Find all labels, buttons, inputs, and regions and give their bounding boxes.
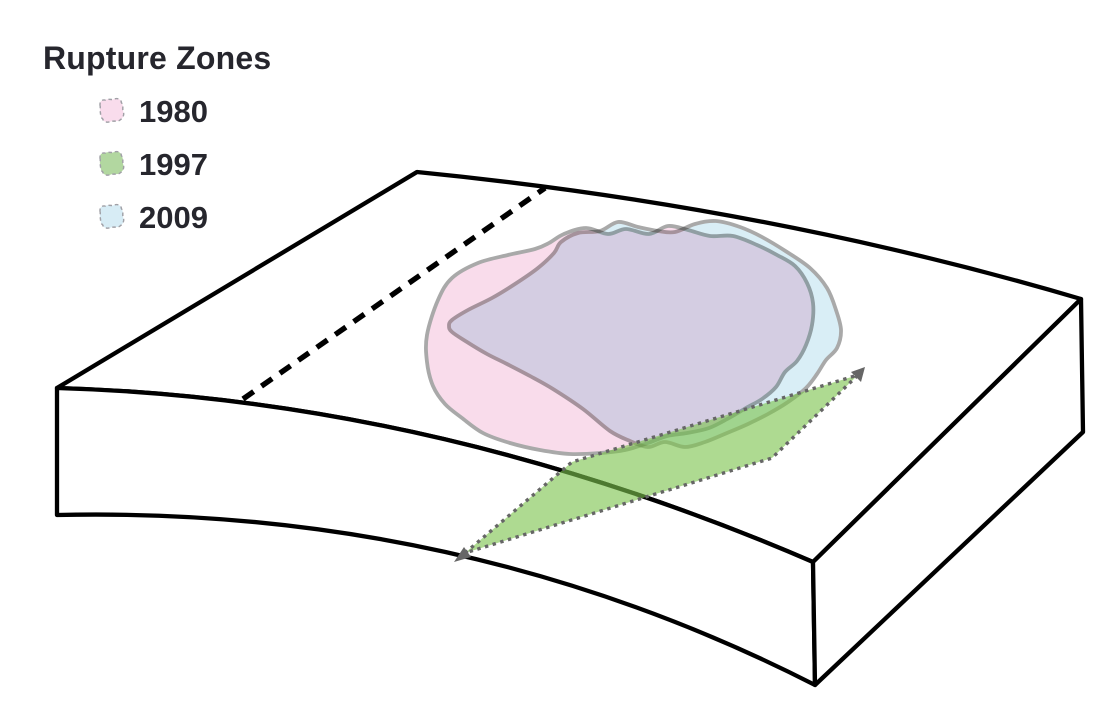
legend-item-1980: 1980 — [95, 94, 271, 130]
legend-item-2009: 2009 — [95, 200, 271, 236]
zone-2009-swatch-icon — [95, 201, 129, 235]
legend-label-1980: 1980 — [139, 94, 208, 130]
legend-label-1997: 1997 — [139, 147, 208, 183]
zone-1997-swatch-icon — [95, 148, 129, 182]
legend-label-2009: 2009 — [139, 200, 208, 236]
figure: Rupture Zones 1980 1997 2009 — [0, 0, 1114, 707]
legend: Rupture Zones 1980 1997 2009 — [43, 40, 271, 236]
legend-item-1997: 1997 — [95, 147, 271, 183]
legend-title: Rupture Zones — [43, 40, 271, 77]
zone-1980-swatch-icon — [95, 95, 129, 129]
